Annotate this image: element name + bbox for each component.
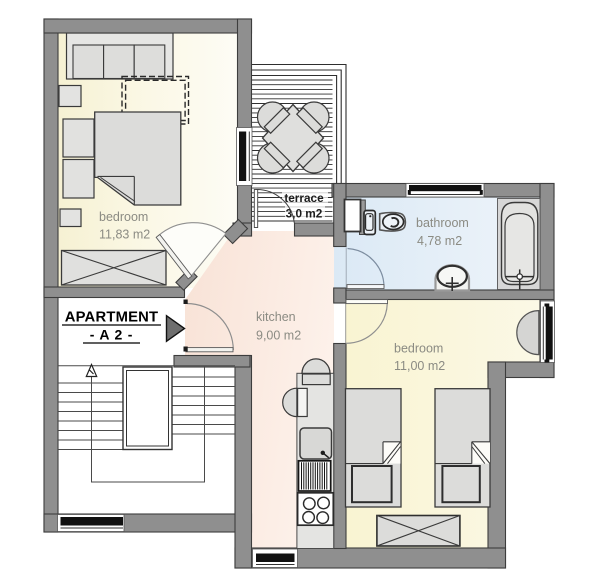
svg-text:APARTMENT: APARTMENT	[65, 310, 159, 326]
svg-text:bathroom: bathroom	[416, 216, 469, 230]
svg-text:bedroom: bedroom	[394, 342, 443, 356]
svg-text:bedroom: bedroom	[99, 210, 148, 224]
svg-text:11,00 m2: 11,00 m2	[394, 359, 445, 373]
svg-text:11,83 m2: 11,83 m2	[99, 228, 150, 242]
svg-text:terrace: terrace	[284, 191, 324, 205]
svg-text:3,0 m2: 3,0 m2	[286, 207, 323, 221]
svg-text:kitchen: kitchen	[256, 310, 296, 324]
svg-text:4,78 m2: 4,78 m2	[417, 234, 462, 248]
svg-text:- A 2 -: - A 2 -	[90, 327, 133, 343]
svg-text:9,00 m2: 9,00 m2	[256, 329, 301, 343]
